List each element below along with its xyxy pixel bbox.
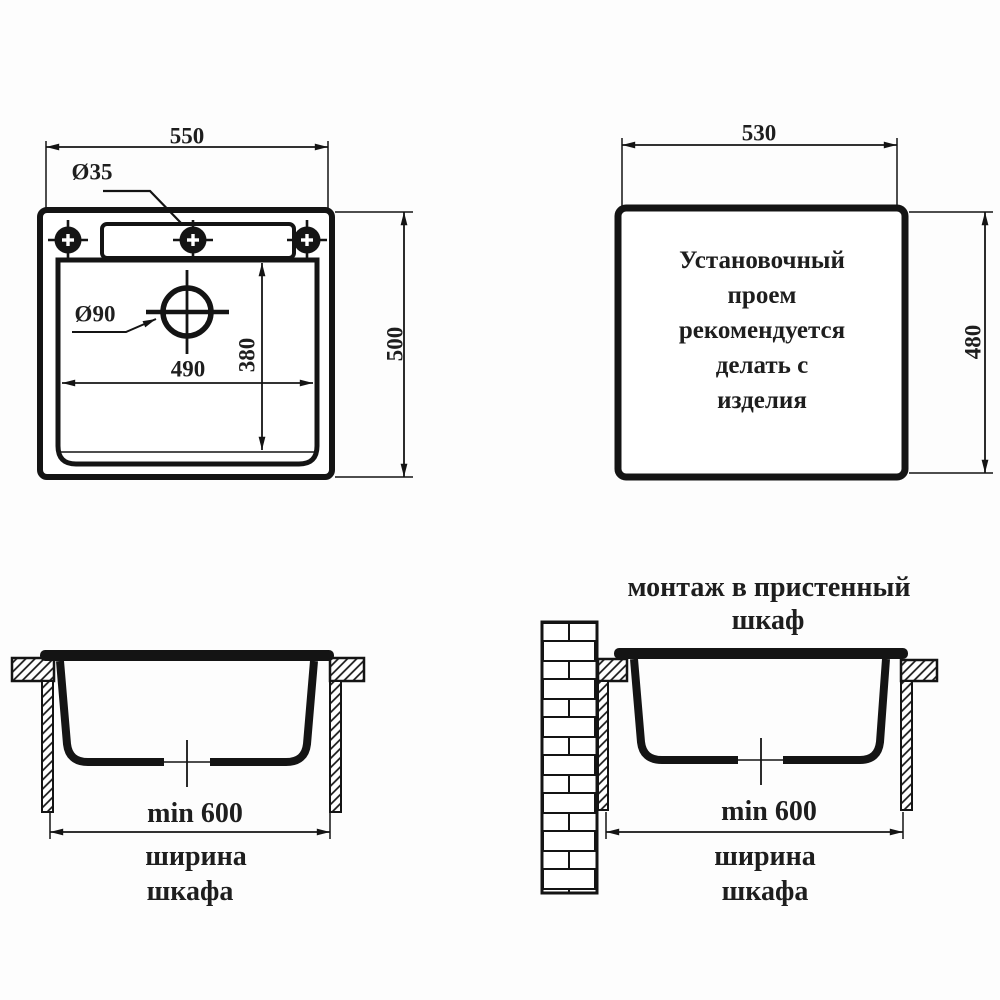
sink-rim [614, 648, 908, 659]
dim-bowl-depth-label: 380 [236, 338, 259, 373]
countertop-left [598, 659, 627, 681]
dim-min-width-label: min 600 [147, 800, 243, 828]
bowl-section-outline [634, 659, 886, 760]
dim-cutout-height-label: 480 [962, 325, 985, 360]
dim-cutout-width [622, 138, 897, 206]
countertop-right [901, 660, 937, 681]
note-line: изделия [618, 383, 906, 418]
cabinet-width-caption-line2: шкафа [147, 878, 234, 906]
installation-drawing-sheet: 550 Ø35 Ø90 490 380 500 530 480 Установо… [0, 0, 1000, 1000]
countertop-left [12, 658, 54, 681]
countertop-right [330, 658, 364, 681]
dim-overall-width-label: 550 [170, 125, 205, 148]
cabinet-side-left [598, 681, 608, 810]
note-line: Установочный [618, 243, 906, 278]
cabinet-side-right [901, 681, 912, 810]
faucet-hole-dia-label: Ø35 [72, 161, 113, 184]
brick-wall [542, 622, 597, 893]
cabinet-side-left [42, 681, 53, 812]
wall-mount-title-line1: монтаж в пристенный [627, 574, 910, 602]
note-line: проем [618, 278, 906, 313]
note-line: делать с [618, 348, 906, 383]
dim-min-width-label: min 600 [721, 798, 817, 826]
dim-cutout-width-label: 530 [742, 122, 777, 145]
cabinet-width-caption-line1: ширина [714, 843, 816, 871]
cabinet-width-caption-line1: ширина [145, 843, 247, 871]
cutout-note: Установочный проем рекомендуется делать … [618, 243, 906, 418]
drain-dia-label: Ø90 [75, 303, 116, 326]
note-line: рекомендуется [618, 313, 906, 348]
wall-mount-title-line2: шкаф [732, 607, 805, 635]
cabinet-side-right [330, 681, 341, 812]
cabinet-width-caption-line2: шкафа [722, 878, 809, 906]
dim-bowl-width-label: 490 [171, 358, 206, 381]
dim-overall-depth-label: 500 [384, 327, 407, 362]
sink-rim [40, 650, 334, 661]
